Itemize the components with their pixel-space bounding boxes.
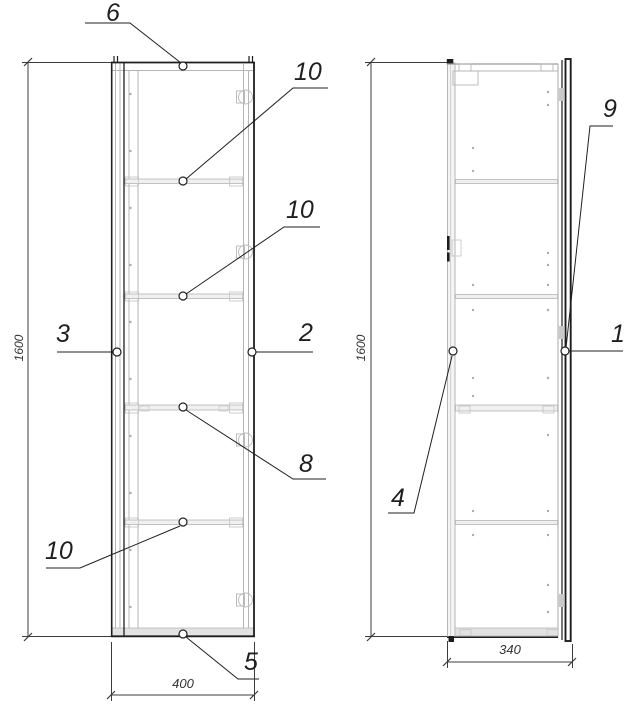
callout-label-top-panel: 6 [106, 1, 120, 26]
marker-2 [248, 348, 256, 356]
leader-6 [85, 23, 181, 63]
technical-drawing-canvas: 6 10 10 3 2 8 10 5 9 1 4 1600 400 1600 3… [0, 0, 635, 713]
dim-front-width [107, 642, 258, 701]
marker-6 [179, 62, 187, 70]
marker-5 [179, 630, 187, 638]
callout-leaders [46, 23, 623, 679]
leader-10-middle [186, 227, 320, 294]
dim-label-side-height: 1600 [355, 328, 367, 368]
dim-label-front-height: 1600 [13, 328, 25, 368]
callout-label-door-edge: 9 [603, 97, 617, 122]
dim-side-height [365, 58, 447, 641]
front-pin-holes [129, 93, 131, 608]
marker-10-middle [179, 292, 187, 300]
marker-4 [449, 347, 457, 355]
side-body [447, 64, 558, 637]
dimension-lines [22, 58, 576, 701]
marker-1 [561, 347, 569, 355]
dim-label-front-width: 400 [163, 677, 203, 690]
side-pin-holes [472, 91, 549, 613]
callout-label-left-side: 3 [56, 322, 70, 347]
callout-label-right-side: 2 [299, 321, 313, 346]
marker-10-upper [179, 177, 187, 185]
callout-label-bottom-panel: 5 [244, 650, 258, 675]
callout-label-shelf-pin-middle: 10 [286, 198, 314, 223]
front-outline [111, 56, 255, 637]
leader-9 [566, 126, 613, 348]
side-view-group [447, 59, 571, 642]
side-shelves [456, 180, 558, 525]
callout-label-back-panel: 4 [391, 486, 405, 511]
dim-label-side-depth: 340 [490, 643, 530, 656]
callout-label-shelf-pin-upper: 10 [294, 60, 322, 85]
callout-markers [113, 62, 569, 638]
callout-label-middle-shelf: 8 [299, 452, 313, 477]
callout-label-shelf-pin-lower: 10 [45, 539, 73, 564]
side-shelf-rail [456, 405, 558, 413]
drawing-linework [0, 0, 635, 713]
front-view-group [111, 56, 255, 637]
front-interior-lines [112, 63, 253, 636]
leader-10-upper [186, 88, 328, 179]
marker-10-lower [179, 518, 187, 526]
marker-3 [113, 348, 121, 356]
callout-label-door: 1 [611, 322, 625, 347]
marker-8 [179, 403, 187, 411]
